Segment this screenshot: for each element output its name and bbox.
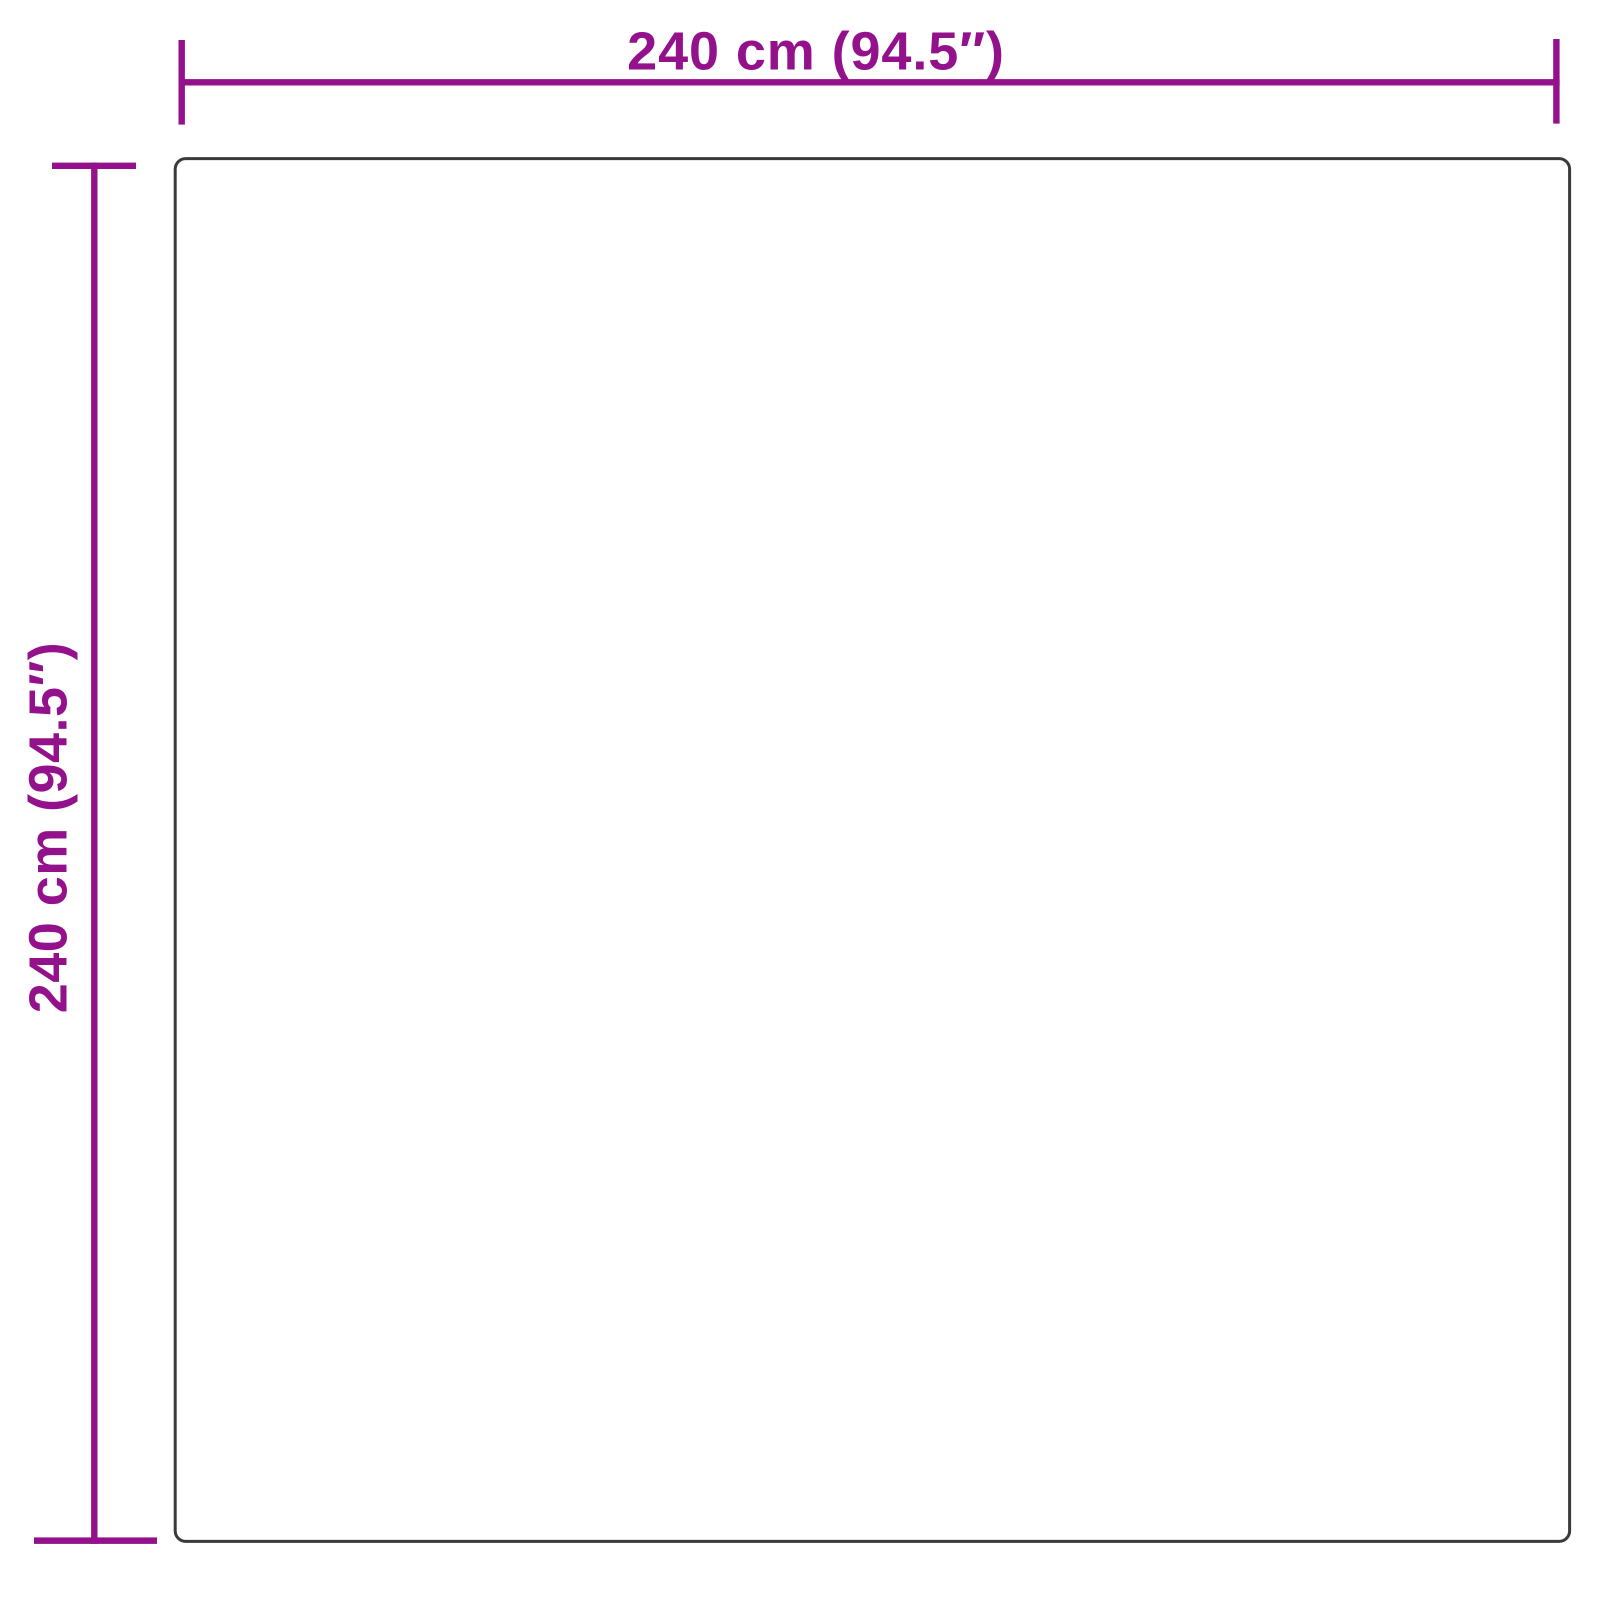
- svg-text:240 cm (94.5″): 240 cm (94.5″): [627, 21, 1005, 81]
- svg-text:240 cm (94.5″): 240 cm (94.5″): [19, 642, 79, 1013]
